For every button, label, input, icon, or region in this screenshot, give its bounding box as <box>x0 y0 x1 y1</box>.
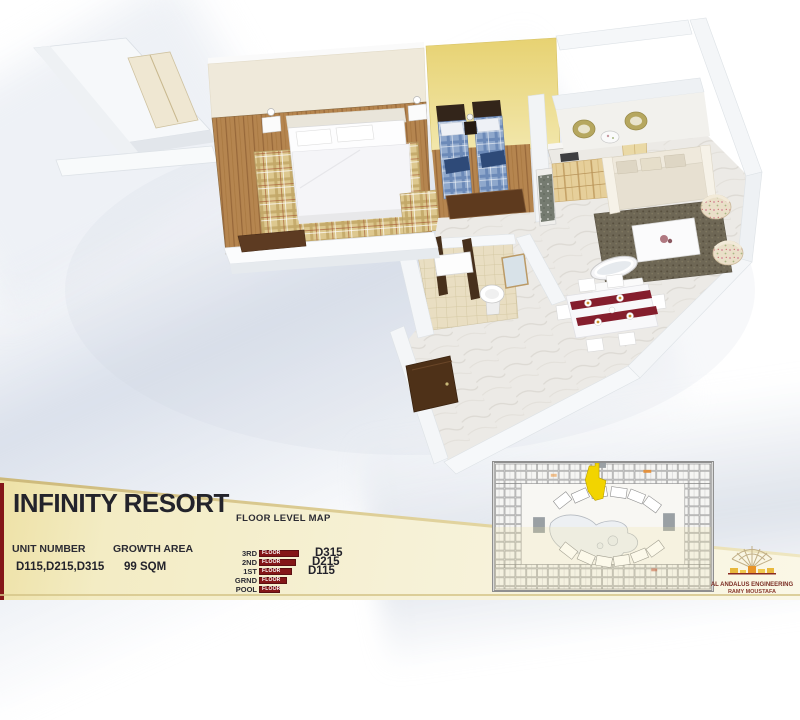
resort-site-plan-icon <box>492 461 714 592</box>
unit-number-value: D115,D215,D315 <box>16 561 104 573</box>
sofa-cushion <box>616 160 638 174</box>
armchair-1 <box>701 195 731 219</box>
floor-row-grnd: GRND FLOOR <box>230 576 410 585</box>
site-marker <box>643 470 651 473</box>
bathroom-mirror <box>502 254 528 288</box>
floor-level-map-title: FLOOR LEVEL MAP <box>236 513 331 524</box>
balcony-table <box>601 131 619 143</box>
company-logo: AL ANDALUS ENGINEERING RAMY MOUSTAFA <box>706 542 798 598</box>
bed-pillow <box>296 129 332 146</box>
floor-row-pool: POOL FLOOR <box>230 585 410 594</box>
kids-plaid-rug <box>400 190 440 234</box>
door-handle-icon <box>445 382 448 385</box>
bottom-divider-line <box>0 594 800 596</box>
floor-unit: D115 <box>308 567 335 576</box>
bathtub <box>434 252 473 276</box>
floor-label: 3RD <box>230 549 259 558</box>
armchair-2 <box>713 241 743 265</box>
master-bed <box>286 108 414 224</box>
floor-bar: FLOOR <box>259 550 299 557</box>
coffee-table <box>632 218 700 262</box>
floor-level-diagram: 3RD FLOOR D315 2ND FLOOR D215 1ST FLOOR … <box>230 549 410 594</box>
floor-bar: FLOOR <box>259 559 296 566</box>
kitchen-island <box>538 174 555 222</box>
unit-number-label: UNIT NUMBER <box>12 543 86 555</box>
floor-label: POOL <box>230 585 259 594</box>
table-lamp-icon <box>467 114 473 120</box>
floor-bar: FLOOR <box>259 568 292 575</box>
sofa-cushion <box>640 157 662 171</box>
sofa-cushion <box>664 154 686 168</box>
dome-arches-icon <box>706 542 798 576</box>
floor-label: 2ND <box>230 558 259 567</box>
logo-company-name: AL ANDALUS ENGINEERING <box>706 582 798 589</box>
site-marker <box>551 474 557 477</box>
cream-tint-overlay <box>494 527 713 591</box>
kids-bed-2 <box>474 116 508 193</box>
floor-row-1st: 1ST FLOOR D115 <box>230 567 410 576</box>
logo-person-name: RAMY MOUSTAFA <box>706 589 798 595</box>
floor-bar: FLOOR <box>259 586 280 593</box>
master-bedroom <box>208 42 432 254</box>
left-accent-border <box>0 483 4 600</box>
entry-door <box>406 356 458 412</box>
page-title: INFINITY RESORT <box>13 488 229 519</box>
bed-pillow <box>336 125 374 142</box>
growth-area-label: GROWTH AREA <box>113 543 193 555</box>
growth-area-value: 99 SQM <box>124 561 166 573</box>
table-lamp-icon <box>268 109 275 116</box>
apartment-3d-floor-plan <box>0 0 800 500</box>
floor-bar: FLOOR <box>259 577 287 584</box>
table-lamp-icon <box>414 97 421 104</box>
hallway-walls <box>34 38 218 176</box>
floor-label: 1ST <box>230 567 259 576</box>
floor-label: GRND <box>230 576 259 585</box>
